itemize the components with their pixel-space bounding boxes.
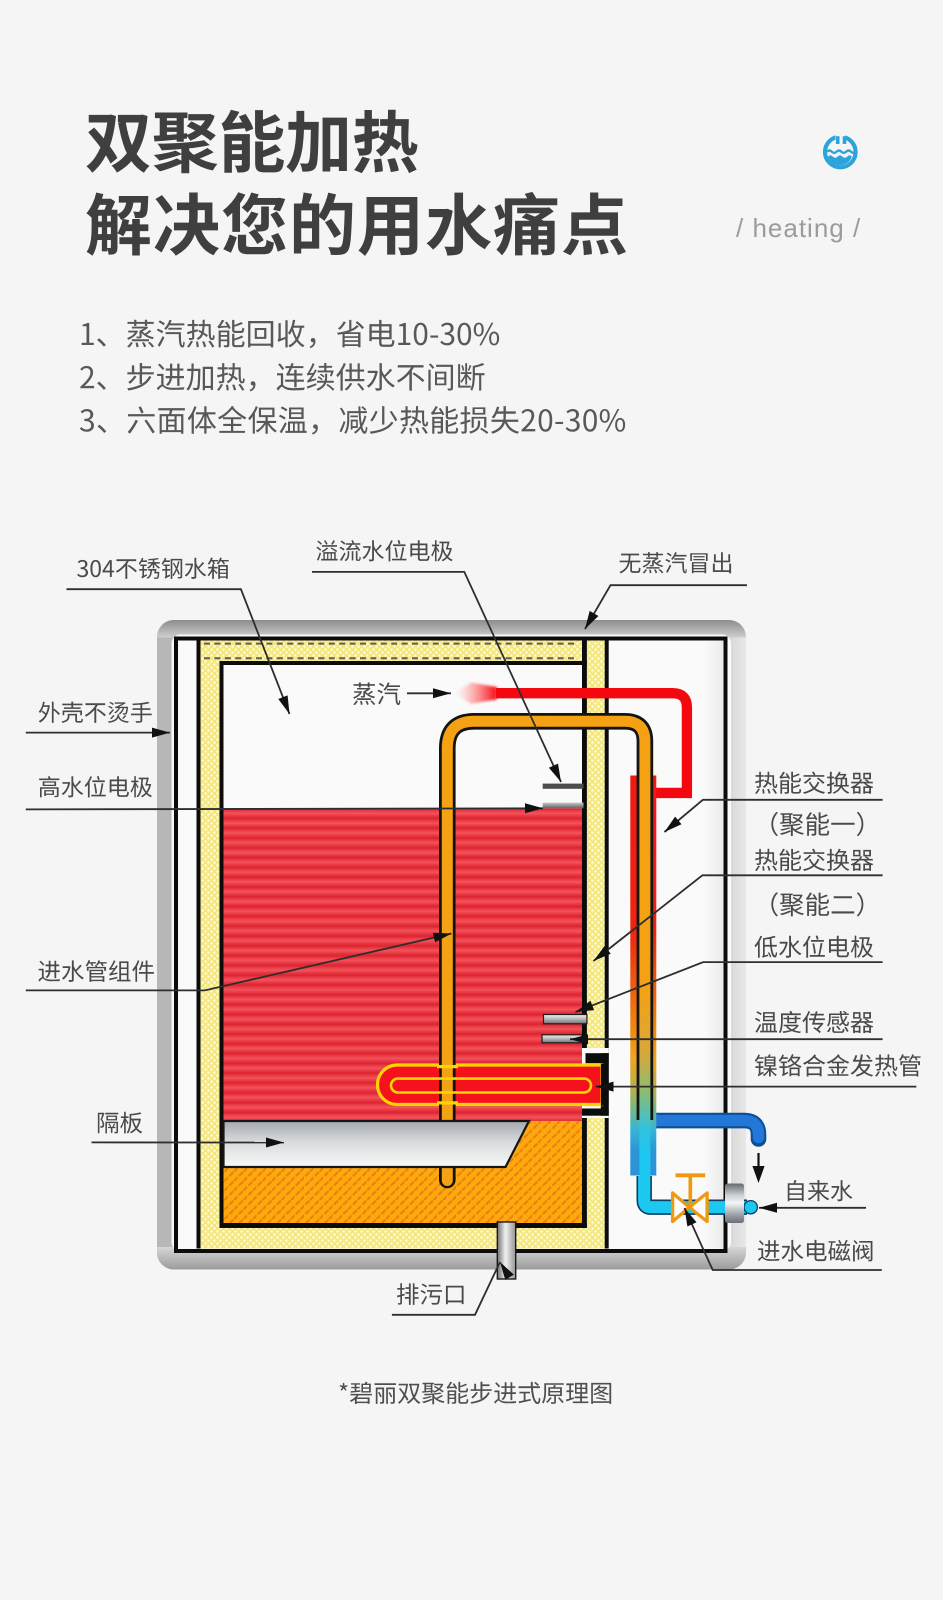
svg-text:/ heating /: / heating / [736, 213, 861, 243]
